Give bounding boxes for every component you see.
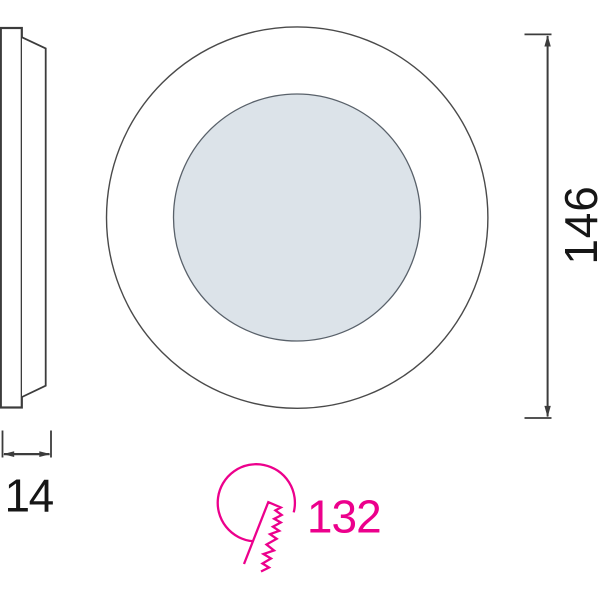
svg-text:14: 14	[5, 470, 54, 522]
svg-text:146: 146	[555, 185, 600, 264]
svg-text:132: 132	[307, 491, 381, 543]
